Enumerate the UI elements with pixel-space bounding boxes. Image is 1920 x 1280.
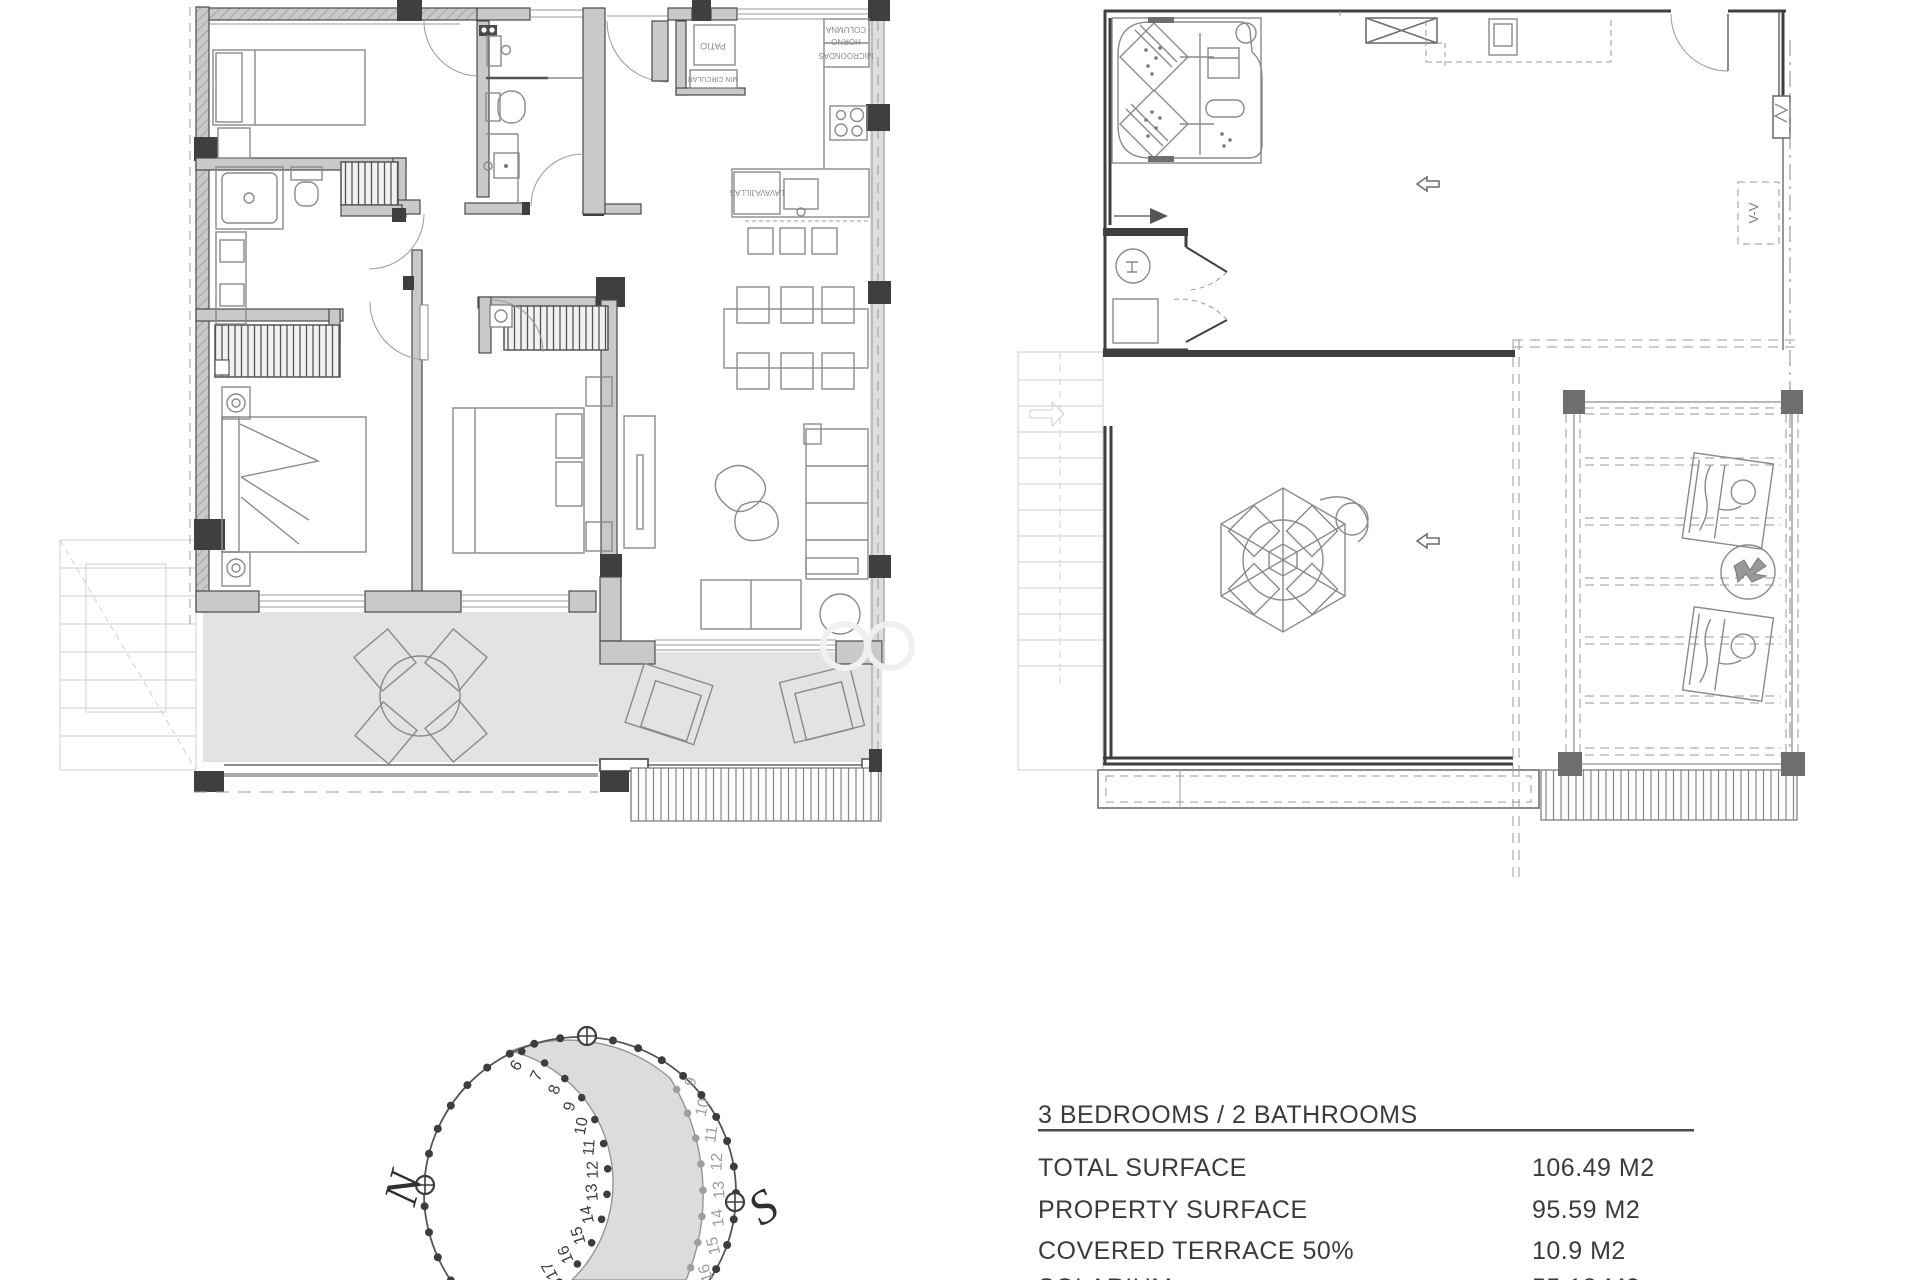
svg-text:10: 10 xyxy=(572,1116,592,1137)
svg-text:MIN CIRCULAR: MIN CIRCULAR xyxy=(688,75,739,82)
svg-text:55.18 M2: 55.18 M2 xyxy=(1532,1274,1640,1280)
svg-text:V-V: V-V xyxy=(1746,202,1761,223)
svg-text:13: 13 xyxy=(711,1180,729,1199)
svg-text:10.9 M2: 10.9 M2 xyxy=(1532,1237,1626,1265)
svg-text:14: 14 xyxy=(709,1208,728,1228)
svg-text:11: 11 xyxy=(702,1125,721,1144)
svg-text:LAVAVAJILLAS: LAVAVAJILLAS xyxy=(730,188,785,197)
svg-text:106.49 M2: 106.49 M2 xyxy=(1532,1154,1655,1182)
svg-text:11: 11 xyxy=(580,1138,598,1156)
svg-text:13: 13 xyxy=(583,1183,602,1203)
svg-text:COLUMNA: COLUMNA xyxy=(825,25,866,34)
svg-text:PROPERTY SURFACE: PROPERTY SURFACE xyxy=(1038,1196,1308,1224)
svg-text:95.59 M2: 95.59 M2 xyxy=(1532,1196,1640,1224)
svg-text:TOTAL SURFACE: TOTAL SURFACE xyxy=(1038,1154,1247,1182)
svg-text:HORNO: HORNO xyxy=(831,37,861,46)
svg-text:3 BEDROOMS / 2 BATHROOMS: 3 BEDROOMS / 2 BATHROOMS xyxy=(1038,1101,1418,1129)
svg-text:COVERED TERRACE 50%: COVERED TERRACE 50% xyxy=(1038,1237,1354,1265)
svg-text:12: 12 xyxy=(708,1152,726,1171)
svg-text:PATIO: PATIO xyxy=(700,41,726,51)
svg-text:14: 14 xyxy=(578,1204,598,1225)
svg-text:MICROONDAS: MICROONDAS xyxy=(818,51,873,60)
svg-text:SOLARIUM: SOLARIUM xyxy=(1038,1274,1173,1280)
svg-text:12: 12 xyxy=(585,1161,602,1179)
